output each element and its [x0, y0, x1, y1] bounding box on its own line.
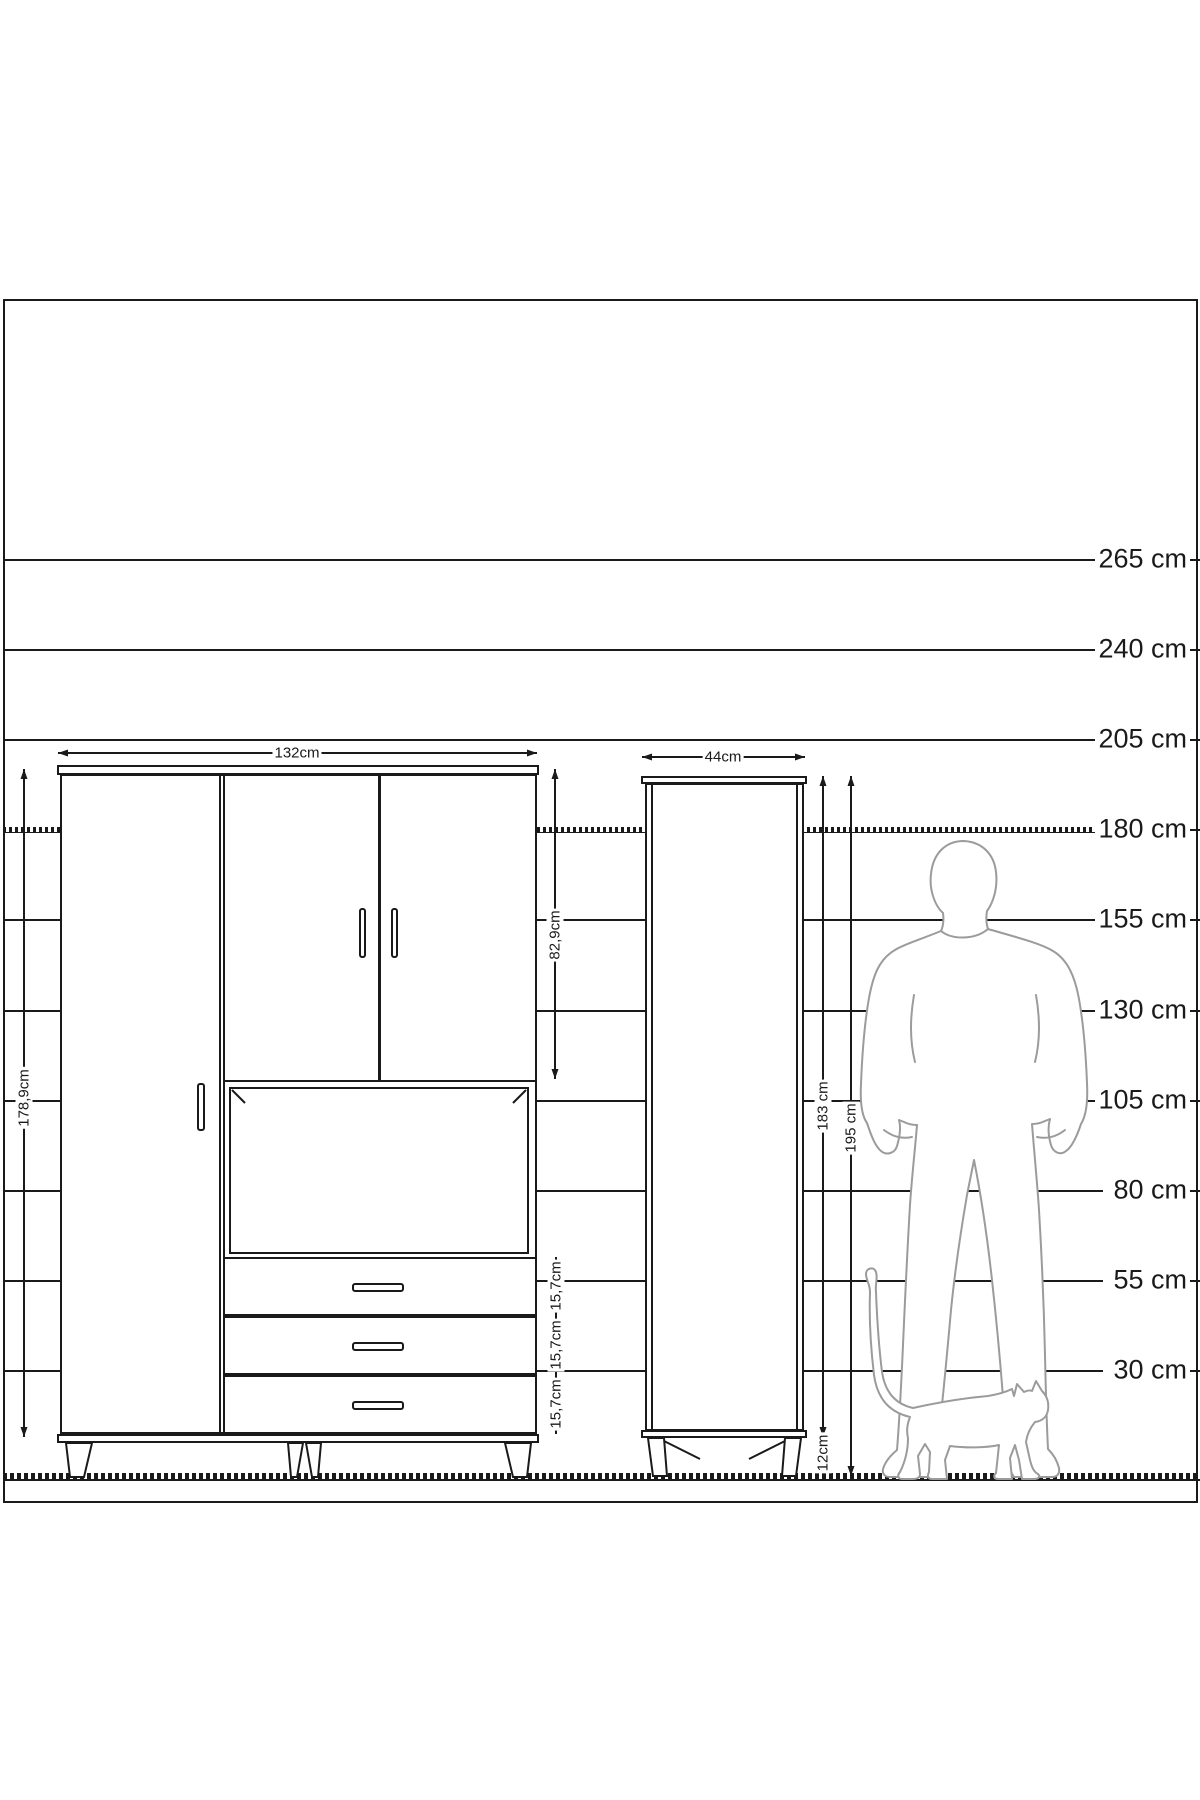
dim-arrow: [58, 750, 68, 757]
tall-cabinet-leg-left: [648, 1438, 667, 1476]
dim-arrow: [21, 769, 28, 779]
large-cabinet-leg-mid-left: [288, 1443, 303, 1477]
dim-arrow: [848, 1466, 855, 1476]
dim-arrow: [795, 754, 805, 761]
dimension-lines: [0, 0, 1200, 1800]
dim-arrow: [848, 776, 855, 786]
dim-label-height-large: 178,9cm: [16, 1067, 33, 1129]
tall-cabinet-leg-right: [782, 1438, 801, 1476]
dim-label-total-tall: 195 cm: [843, 1101, 860, 1154]
dim-arrow: [820, 776, 827, 786]
dim-arrow: [552, 1069, 559, 1079]
dim-arrow: [642, 754, 652, 761]
dim-label-legs-tall: 12cm: [815, 1433, 832, 1474]
dim-label-width-tall: 44cm: [703, 749, 744, 766]
dim-label-drawer-3: 15,7cm: [548, 1377, 565, 1430]
dim-label-width-large: 132cm: [272, 745, 321, 762]
dim-label-drawer-1: 15,7cm: [548, 1259, 565, 1312]
dim-label-body-tall: 183 cm: [815, 1079, 832, 1132]
furniture-dimension-diagram: 265 cm240 cm205 cm180 cm155 cm130 cm105 …: [0, 0, 1200, 1800]
compartment-corner-right: [513, 1090, 526, 1103]
dim-arrow: [21, 1427, 28, 1437]
dim-label-upper-doors: 82,9cm: [547, 908, 564, 961]
large-cabinet-leg-outer-left: [66, 1443, 92, 1477]
tall-cabinet-leg-brace-left: [664, 1441, 700, 1459]
tall-cabinet-leg-brace-right: [749, 1441, 785, 1459]
dim-arrow: [552, 769, 559, 779]
dim-arrow: [527, 750, 537, 757]
compartment-corner-left: [232, 1090, 245, 1103]
large-cabinet-leg-mid-right: [306, 1443, 321, 1477]
large-cabinet-leg-outer-right: [505, 1443, 531, 1477]
dim-label-drawer-2: 15,7cm: [548, 1318, 565, 1371]
